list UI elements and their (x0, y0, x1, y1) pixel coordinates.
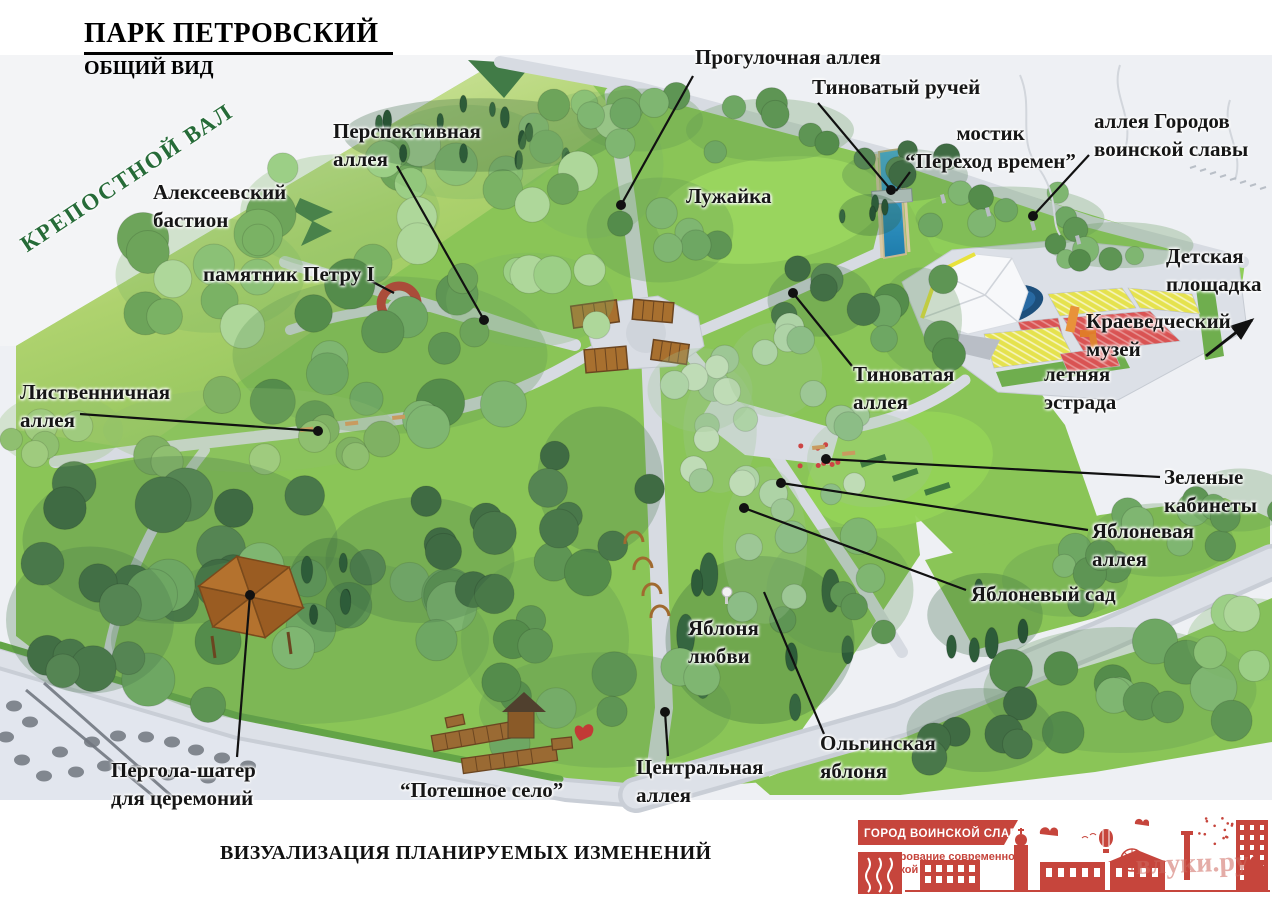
page-subtitle: ОБЩИЙ ВИД (84, 57, 393, 80)
caption: ВИЗУАЛИЗАЦИЯ ПЛАНИРУЕМЫХ ИЗМЕНЕНИЙ (220, 842, 711, 865)
header: ПАРК ПЕТРОВСКИЙ ОБЩИЙ ВИД (84, 18, 393, 80)
park-plan-poster: ГОРОД ВОИНСКОЙ СЛАВЫФормирование совреме… (0, 0, 1272, 900)
watermark: влуки.ру (1135, 846, 1249, 881)
logo-banner-text: ГОРОД ВОИНСКОЙ СЛАВЫ (864, 827, 1030, 840)
page-title: ПАРК ПЕТРОВСКИЙ (84, 18, 393, 55)
